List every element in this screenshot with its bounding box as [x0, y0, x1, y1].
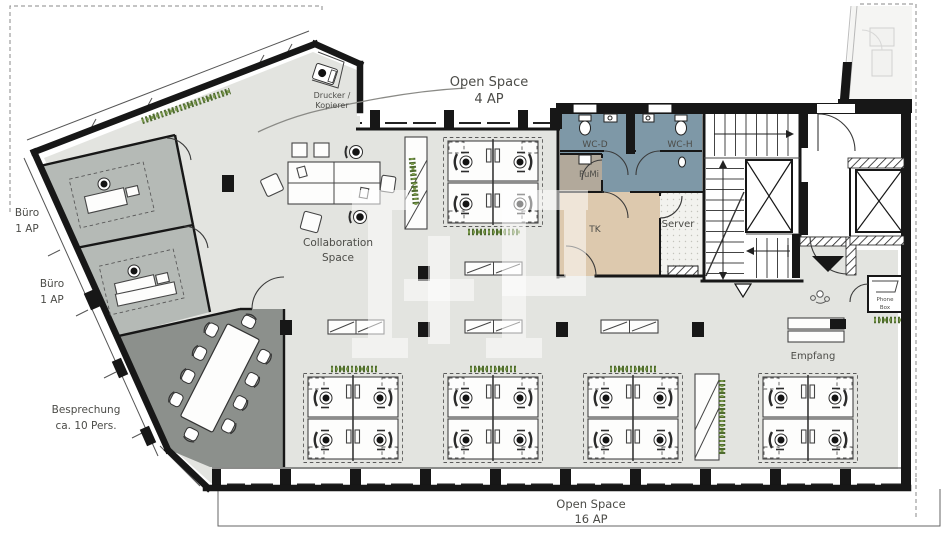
cabinet-top	[405, 137, 427, 229]
label-buero-2-cap: 1 AP	[40, 294, 64, 306]
cabinet-green-wall	[695, 374, 722, 460]
label-open-space-main: Open Space	[556, 497, 625, 511]
urinal-icon	[679, 157, 686, 167]
wc-fixture	[579, 155, 591, 164]
sink-icon	[604, 114, 617, 122]
label-server: Server	[662, 219, 696, 230]
shaft-2	[848, 158, 904, 245]
label-drucker-1: Drucker /	[314, 91, 351, 100]
label-pumi: PuMi	[579, 170, 599, 180]
label-phone-box-2: Box	[880, 305, 891, 311]
label-tk: TK	[588, 225, 601, 235]
label-wc-h: WC-H	[667, 140, 692, 150]
label-open-space-main-cap: 16 AP	[574, 512, 607, 526]
toilet-icon	[579, 115, 591, 135]
toilet-icon	[675, 115, 687, 135]
label-collaboration-2: Space	[322, 252, 354, 264]
sink-icon	[643, 114, 654, 122]
label-open-space-top-cap: 4 AP	[474, 92, 503, 107]
floor-plan-svg: Open Space 4 AP Drucker / Kopierer WC-D …	[0, 0, 950, 543]
label-buero-1-cap: 1 AP	[15, 223, 39, 235]
label-empfang: Empfang	[791, 351, 836, 362]
floor-plan: Open Space 4 AP Drucker / Kopierer WC-D …	[0, 0, 950, 543]
label-wc-d: WC-D	[582, 140, 607, 150]
label-open-space-top: Open Space	[450, 75, 528, 90]
label-drucker-2: Kopierer	[315, 101, 349, 110]
label-besprechung-cap: ca. 10 Pers.	[55, 420, 116, 432]
label-besprechung: Besprechung	[52, 404, 121, 416]
server-rack	[668, 266, 698, 275]
label-buero-1: Büro	[15, 207, 39, 219]
label-collaboration-1: Collaboration	[303, 237, 373, 249]
label-buero-2: Büro	[40, 278, 64, 290]
label-phone-box-1: Phone	[876, 297, 894, 303]
